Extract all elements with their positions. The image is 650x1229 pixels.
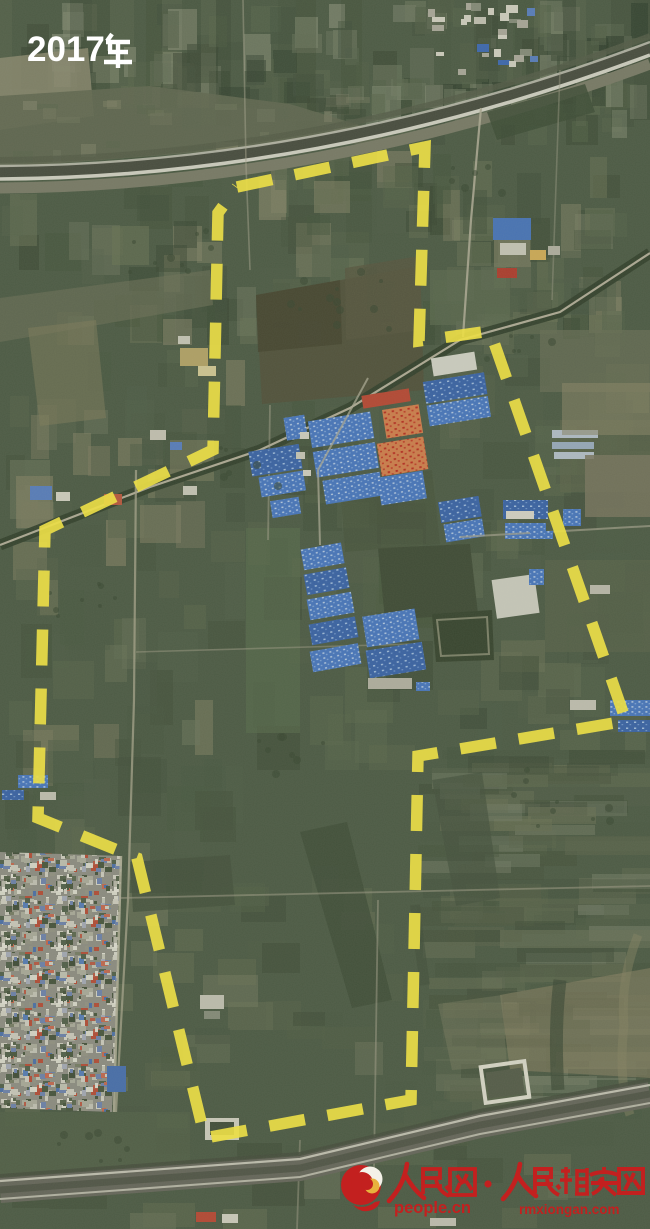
svg-text:rmxiongan.com: rmxiongan.com <box>519 1202 620 1217</box>
svg-text:people.cn: people.cn <box>394 1199 471 1217</box>
svg-text:2017: 2017 <box>27 30 105 69</box>
